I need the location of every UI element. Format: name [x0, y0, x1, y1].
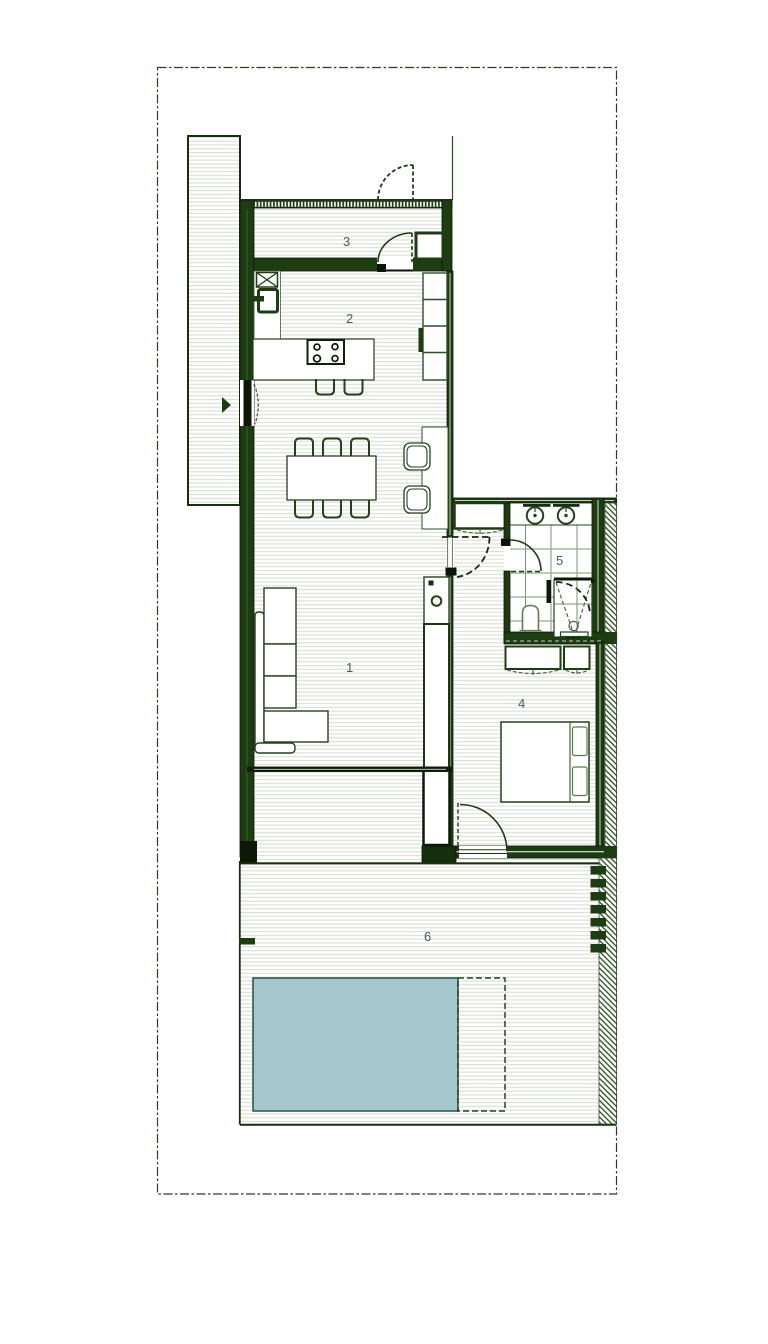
svg-text:1: 1 — [346, 660, 353, 675]
svg-text:6: 6 — [424, 929, 431, 944]
svg-text:2: 2 — [346, 311, 353, 326]
svg-text:3: 3 — [343, 234, 350, 249]
svg-text:5: 5 — [556, 553, 563, 568]
svg-text:4: 4 — [518, 696, 525, 711]
